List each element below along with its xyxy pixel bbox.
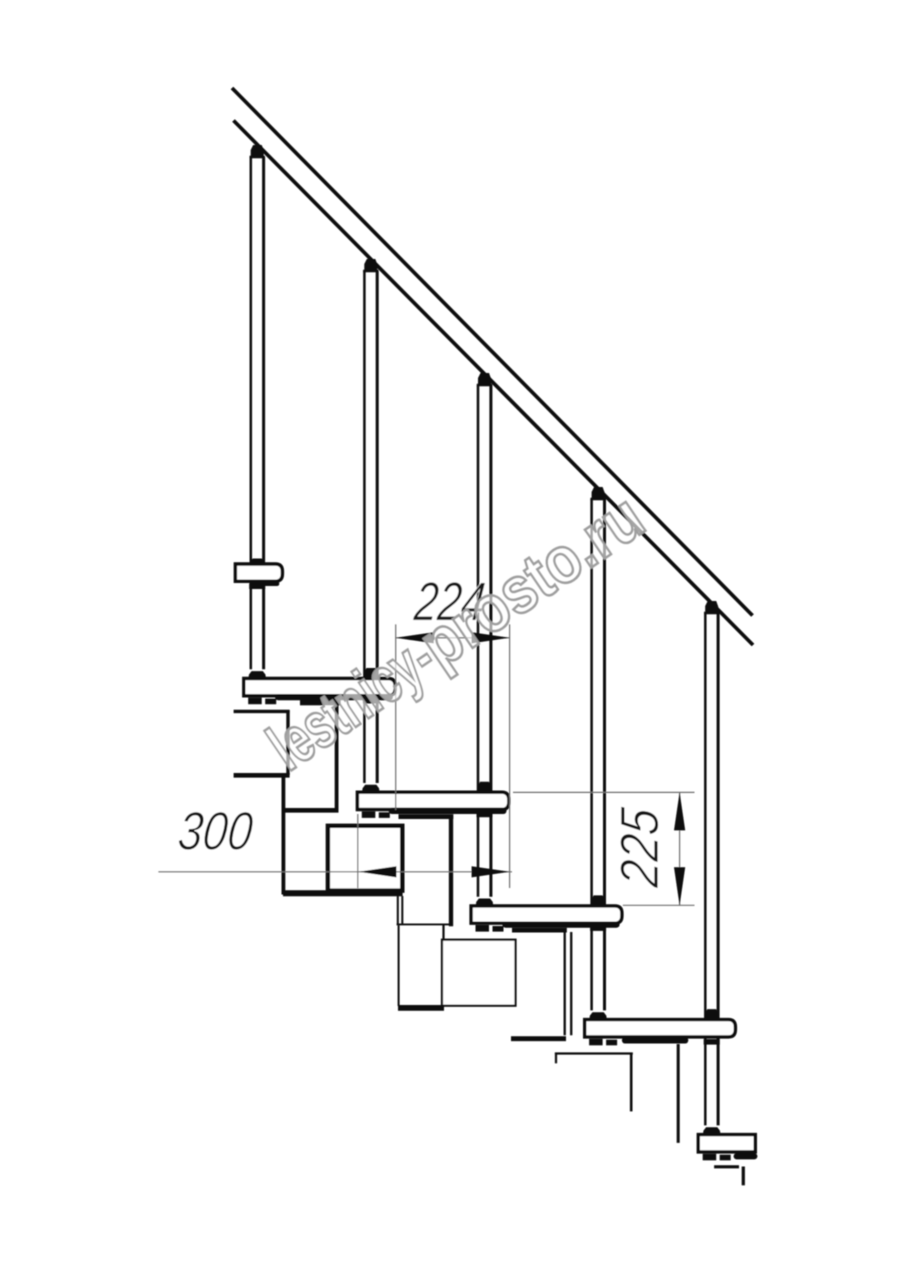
svg-text:300: 300: [175, 802, 255, 862]
svg-text:225: 225: [610, 804, 670, 890]
